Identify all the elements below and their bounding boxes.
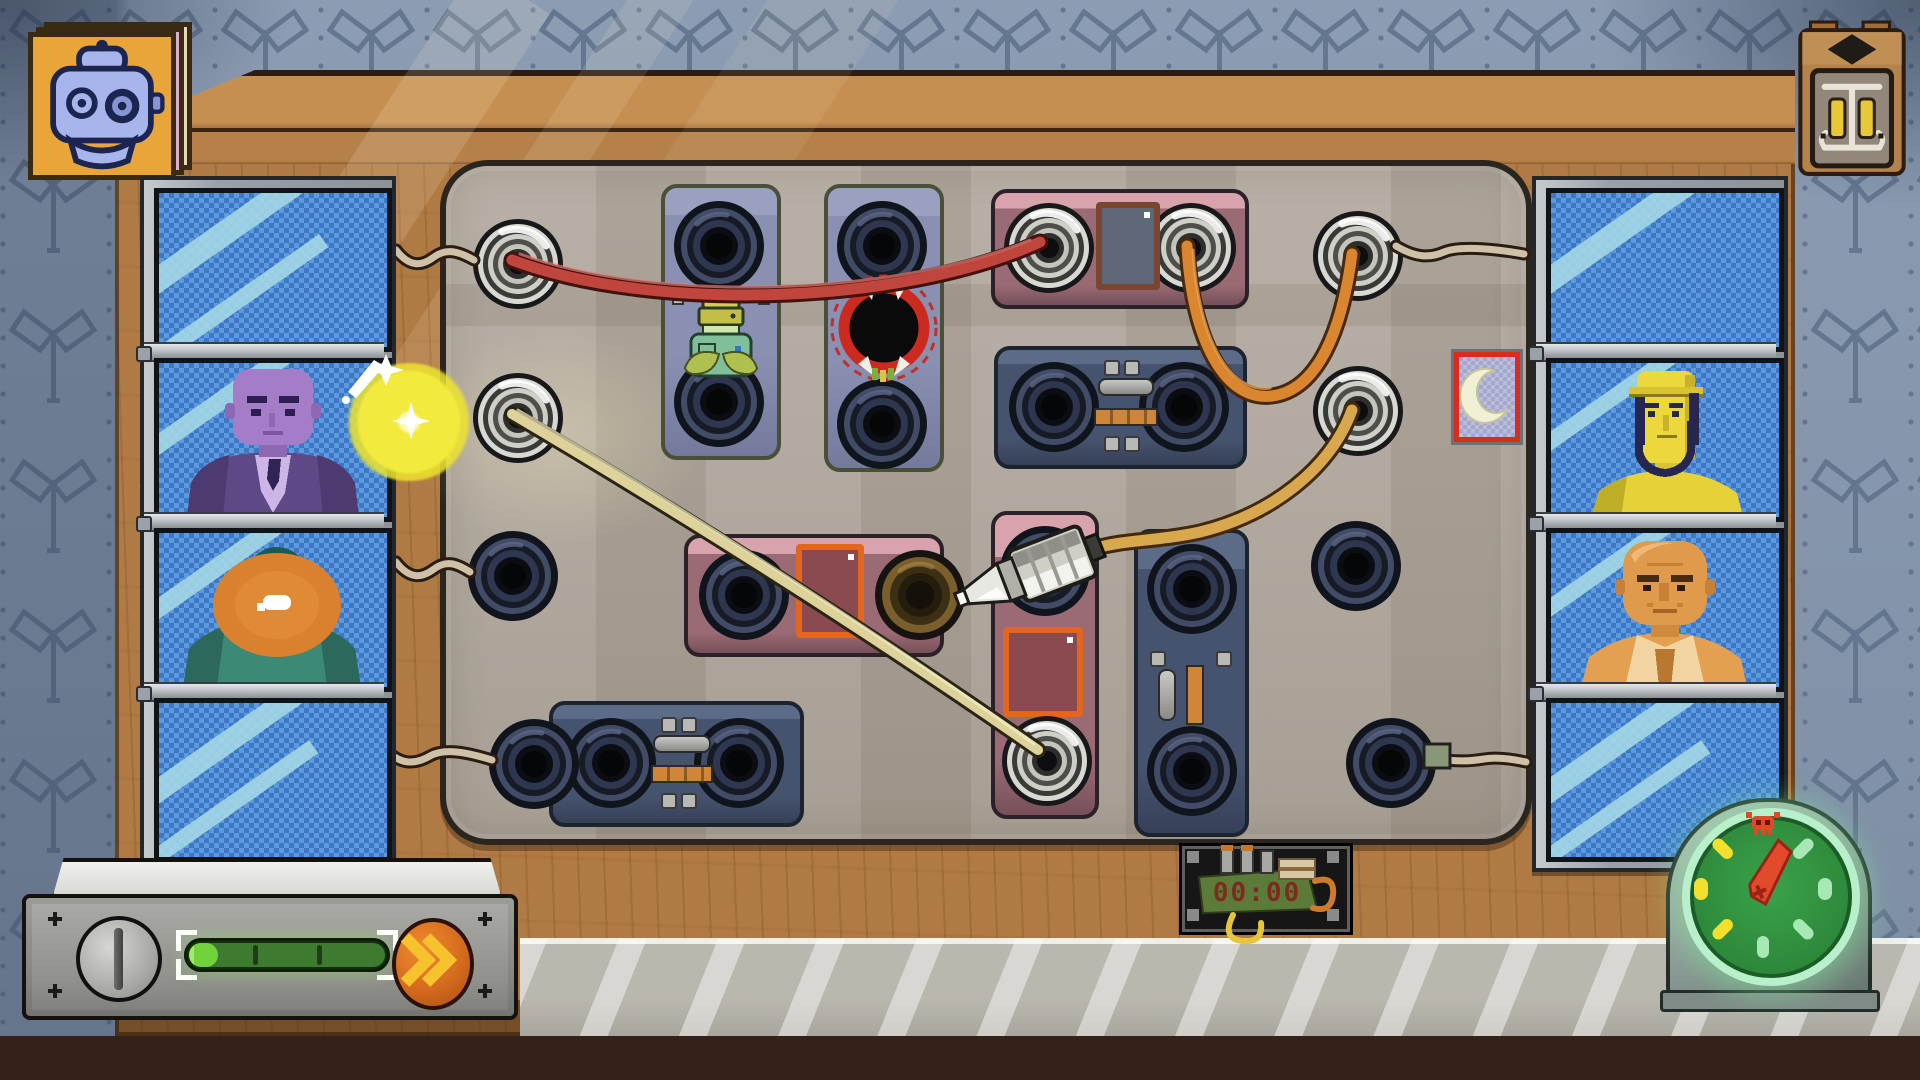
screw (1216, 651, 1232, 667)
caller-screen-right-1[interactable] (1546, 188, 1784, 352)
component-capsule (1098, 378, 1154, 396)
caller-screen-left-1[interactable] (154, 188, 392, 352)
screw (661, 793, 677, 809)
fast-forward-icon (396, 922, 462, 998)
socket-module-electronics-bottom (549, 701, 804, 827)
right-jack-1[interactable] (1312, 210, 1404, 302)
console-top-rail (115, 70, 1795, 128)
plus-screw-icon (478, 984, 492, 998)
module-e-left-jack[interactable] (698, 549, 790, 641)
bomb-timer-display: 00:00 (1213, 878, 1301, 908)
module-c-screen (1096, 202, 1160, 290)
knob-slot (114, 928, 123, 990)
crescent-indicator-tile (1454, 352, 1520, 442)
plus-screw-icon (48, 984, 62, 998)
socket-module-electronics-vertical (1134, 529, 1249, 837)
component-strip (651, 765, 713, 783)
socket-module-screen-left (684, 534, 944, 657)
game-screen: 00:00 (0, 0, 1920, 1080)
module-g-bottom-jack[interactable] (1146, 725, 1238, 817)
component-capsule (1158, 669, 1176, 721)
robot-icon (33, 37, 171, 175)
progress-segment-divider (253, 945, 258, 965)
crescent-icon (1459, 357, 1515, 437)
doom-clock (1664, 794, 1870, 1010)
desk-front (0, 1036, 1920, 1080)
hinge (136, 686, 152, 702)
teal-hooded-caller-portrait (159, 533, 387, 687)
screen-streak (1546, 188, 1761, 319)
left-jack-4[interactable] (488, 718, 580, 810)
module-f-bottom-jack[interactable] (1001, 715, 1093, 807)
caller-screen-right-2[interactable] (1546, 358, 1784, 522)
monster-sticker (828, 188, 940, 468)
bell-box (1796, 20, 1908, 178)
progress-segment-divider (317, 945, 322, 965)
hinge (136, 346, 152, 362)
left-caller-column (140, 176, 396, 872)
socket-module-gnome (661, 184, 781, 460)
clock-base (1660, 990, 1880, 1012)
orange-bald-man-portrait (1551, 533, 1779, 687)
right-jack-3[interactable] (1310, 520, 1402, 612)
right-caller-column (1532, 176, 1788, 872)
caller-screen-left-3[interactable] (154, 528, 392, 692)
plus-screw-icon (48, 912, 62, 926)
bomb-timer-device: 00:00 (1182, 846, 1350, 932)
fast-forward-button[interactable] (392, 918, 474, 1010)
component-capsule (653, 735, 711, 753)
caller-screen-left-4[interactable] (154, 698, 392, 862)
module-h-right-jack[interactable] (693, 717, 785, 809)
module-f-screen (1003, 627, 1083, 717)
socket-module-screen-top (991, 189, 1249, 309)
screw (681, 717, 697, 733)
bomb-timer-graphic: 00:00 (1185, 849, 1347, 959)
console-rail (115, 128, 1795, 164)
switchboard-panel (440, 160, 1532, 845)
progress-track (189, 943, 385, 967)
caller-screen-right-3[interactable] (1546, 528, 1784, 692)
module-g-top-jack[interactable] (1146, 543, 1238, 635)
left-jack-2[interactable] (472, 372, 564, 464)
hinge (1528, 686, 1544, 702)
hinge (136, 516, 152, 532)
socket-module-electronics (994, 346, 1247, 469)
screw (681, 793, 697, 809)
module-c-left-jack[interactable] (1003, 202, 1095, 294)
console-front-panel (22, 894, 518, 1020)
robot-picture (26, 22, 196, 187)
socket-module-monster (824, 184, 944, 472)
module-d-left-jack[interactable] (1008, 361, 1100, 453)
screen-streak (154, 740, 318, 862)
call-progress-bar (176, 930, 398, 980)
hinge (1528, 346, 1544, 362)
right-jack-4[interactable] (1345, 717, 1437, 809)
right-jack-2[interactable] (1312, 365, 1404, 457)
call-progress-console (22, 858, 518, 1028)
left-jack-1[interactable] (472, 218, 564, 310)
progress-fill (189, 943, 218, 967)
module-e-stained-jack[interactable] (874, 549, 966, 641)
skull-marker-icon (1746, 812, 1780, 835)
gnome-sticker (665, 188, 777, 456)
screw (1104, 436, 1120, 452)
screw (1124, 436, 1140, 452)
module-e-screen (796, 544, 864, 638)
screen-streak (154, 698, 368, 829)
yellow-bearded-man-portrait (1551, 363, 1779, 517)
screen-streak (154, 188, 369, 319)
dial-knob[interactable] (76, 916, 162, 1002)
plus-screw-icon (478, 912, 492, 926)
clock-dial (1682, 808, 1844, 970)
screw (1150, 651, 1166, 667)
sparkle-icon (334, 334, 406, 406)
picture-frame-front (28, 32, 176, 180)
screw (661, 717, 677, 733)
component-strip (1186, 665, 1204, 725)
capacitors (1221, 845, 1273, 873)
screw (1104, 360, 1120, 376)
component-strip (1094, 408, 1158, 426)
screw (1124, 360, 1140, 376)
clock-needle (1745, 836, 1793, 905)
left-jack-3[interactable] (467, 530, 559, 622)
module-d-right-jack[interactable] (1138, 361, 1230, 453)
hinge (1528, 516, 1544, 532)
